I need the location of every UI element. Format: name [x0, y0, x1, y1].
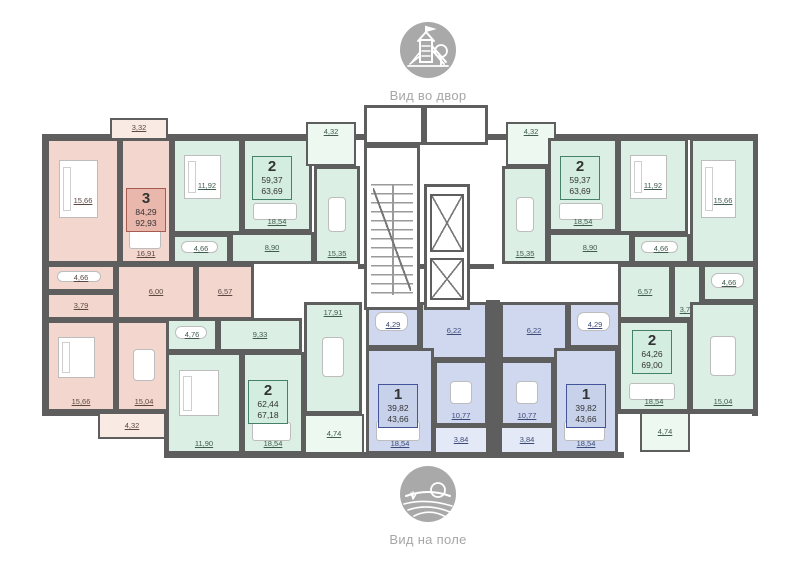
- balcony-apt-2-top-left-5: 4,32: [306, 122, 356, 166]
- bed-furniture: [58, 337, 95, 378]
- apartment-total-area: 92,93: [127, 218, 165, 229]
- balcony-apt-2-right-6: 4,74: [640, 412, 690, 452]
- room-area-label: 3,84: [502, 435, 552, 444]
- balcony-apt-2-bottom-left-5: 4,74: [304, 414, 364, 454]
- apartment-living-area: 84,29: [127, 207, 165, 218]
- room-apt-1-right-2: 10,77: [500, 360, 554, 426]
- apartment-living-area: 39,82: [379, 403, 417, 414]
- bed-furniture: [184, 155, 221, 198]
- apartment-living-area: 62,44: [249, 399, 287, 410]
- room-apt-3-left-8: 15,04: [116, 320, 172, 412]
- room-area-label: 6,00: [119, 287, 193, 296]
- balcony-apt-3-left-9: 4,32: [98, 412, 166, 439]
- room-area-label: 10,77: [503, 411, 551, 420]
- room-area-label: 4,32: [100, 421, 164, 430]
- apartment-rooms-count: 3: [127, 190, 165, 207]
- bed-furniture: [59, 160, 98, 218]
- room-apt-2-right-5: 15,04: [690, 302, 756, 412]
- apartment-info-apt-1-right[interactable]: 139,8243,66: [566, 384, 606, 428]
- room-apt-2-bottom-left-4: 17,91: [304, 302, 362, 414]
- room-apt-3-left-7: 15,66: [46, 320, 116, 412]
- view-field: Вид на поле: [0, 466, 800, 547]
- room-apt-2-bottom-left-2: 11,90: [166, 352, 242, 454]
- room-area-label: 4,74: [642, 427, 688, 436]
- apartment-total-area: 63,69: [253, 186, 291, 197]
- stairwell: [364, 145, 420, 310]
- apartment-rooms-count: 2: [253, 158, 291, 175]
- room-area-label: 8,90: [551, 243, 629, 252]
- room-area-label: 10,77: [437, 411, 485, 420]
- table-furniture: [450, 381, 471, 404]
- room-apt-1-right-1: 4,29: [568, 302, 622, 348]
- room-apt-2-top-right-5: 4,66: [632, 234, 690, 264]
- tub-furniture: [57, 271, 102, 282]
- room-area-label: 6,57: [199, 287, 251, 296]
- balcony-apt-1-right-4: 3,84: [500, 426, 554, 454]
- apartment-living-area: 59,37: [561, 175, 599, 186]
- entrance-vestibule-2: [424, 105, 488, 145]
- bed-furniture: [701, 160, 736, 218]
- sofa-furniture: [559, 203, 604, 221]
- apartment-rooms-count: 2: [633, 332, 671, 349]
- apartment-info-apt-2-top-left[interactable]: 259,3763,69: [252, 156, 292, 200]
- room-area-label: 6,22: [423, 326, 485, 335]
- room-apt-3-left-6: 6,57: [196, 264, 254, 320]
- room-apt-2-top-right-4: 11,92: [618, 138, 688, 234]
- floorplan-page: Вид во двор 3,3215,6616,914,663,796,006,…: [0, 0, 800, 566]
- room-area-label: 3,84: [436, 435, 486, 444]
- tub-furniture: [577, 312, 611, 331]
- apartment-info-apt-2-bottom-left[interactable]: 262,4467,18: [248, 380, 288, 424]
- room-apt-2-right-1: 4,66: [702, 264, 756, 302]
- apartment-total-area: 43,66: [379, 414, 417, 425]
- room-apt-2-right-0: 15,66: [690, 138, 756, 264]
- room-area-label: 4,32: [308, 127, 354, 136]
- apartment-living-area: 39,82: [567, 403, 605, 414]
- table-furniture: [710, 336, 736, 376]
- room-apt-3-left-4: 3,79: [46, 292, 116, 320]
- room-area-label: 4,32: [508, 127, 554, 136]
- stair-direction-line: [373, 188, 411, 291]
- room-area-label: 3,32: [112, 123, 166, 132]
- room-apt-3-left-3: 4,66: [46, 264, 116, 292]
- apartment-info-apt-2-top-right[interactable]: 259,3763,69: [560, 156, 600, 200]
- room-apt-2-top-right-3: 8,90: [548, 232, 632, 264]
- room-area-label: 15,35: [505, 249, 545, 258]
- apartment-total-area: 63,69: [561, 186, 599, 197]
- room-apt-3-left-1: 15,66: [46, 138, 120, 264]
- room-area-label: 17,91: [307, 308, 359, 317]
- tub-furniture: [641, 241, 677, 253]
- room-area-label: 11,90: [169, 439, 239, 448]
- table-furniture: [328, 197, 346, 232]
- tub-furniture: [711, 273, 745, 288]
- room-area-label: 15,04: [693, 397, 753, 406]
- room-area-label: 6,22: [503, 326, 565, 335]
- bed-furniture: [630, 155, 667, 198]
- apartment-info-apt-1-left[interactable]: 139,8243,66: [378, 384, 418, 428]
- apartment-living-area: 64,26: [633, 349, 671, 360]
- room-area-label: 15,04: [119, 397, 169, 406]
- room-apt-2-top-left-0: 11,92: [172, 138, 242, 234]
- elevator-1: [430, 194, 464, 252]
- entrance-vestibule-1: [364, 105, 424, 145]
- apartment-info-apt-3-left[interactable]: 384,2992,93: [126, 188, 166, 232]
- apartment-total-area: 69,00: [633, 360, 671, 371]
- room-area-label: 4,74: [306, 429, 362, 438]
- apartment-rooms-count: 1: [567, 386, 605, 403]
- apartment-rooms-count: 1: [379, 386, 417, 403]
- room-area-label: 8,90: [233, 243, 311, 252]
- table-furniture: [322, 337, 345, 377]
- room-apt-3-left-5: 6,00: [116, 264, 196, 320]
- table-furniture: [133, 349, 155, 382]
- apartment-rooms-count: 2: [561, 158, 599, 175]
- room-apt-2-top-right-1: 15,35: [502, 166, 548, 264]
- room-apt-2-right-3: 6,57: [618, 264, 672, 320]
- room-apt-2-bottom-left-0: 4,76: [166, 318, 218, 352]
- sofa-furniture: [252, 422, 291, 441]
- wall-segment: [486, 300, 500, 458]
- tub-furniture: [375, 312, 409, 331]
- room-apt-2-top-left-1: 4,66: [172, 234, 230, 264]
- apartment-total-area: 43,66: [567, 414, 605, 425]
- room-area-label: 15,66: [49, 397, 113, 406]
- table-furniture: [516, 381, 537, 404]
- room-area-label: 15,35: [317, 249, 357, 258]
- bed-furniture: [179, 370, 220, 416]
- balcony-apt-1-left-4: 3,84: [434, 426, 488, 454]
- room-apt-2-bottom-left-1: 9,33: [218, 318, 302, 352]
- room-area-label: 6,57: [621, 287, 669, 296]
- apartment-info-apt-2-right[interactable]: 264,2669,00: [632, 330, 672, 374]
- table-furniture: [516, 197, 534, 232]
- room-area-label: 9,33: [221, 330, 299, 339]
- apartment-living-area: 59,37: [253, 175, 291, 186]
- view-caption-bottom: Вид на поле: [56, 532, 800, 547]
- tub-furniture: [181, 241, 217, 253]
- elevator-2: [430, 258, 464, 300]
- field-icon: [400, 466, 456, 522]
- room-apt-1-left-3: 10,77: [434, 360, 488, 426]
- room-area-label: 3,79: [49, 301, 113, 310]
- apartment-total-area: 67,18: [249, 410, 287, 421]
- room-apt-2-top-left-4: 15,35: [314, 166, 360, 264]
- room-apt-2-top-left-3: 8,90: [230, 232, 314, 264]
- apartment-rooms-count: 2: [249, 382, 287, 399]
- room-area-label: 16,91: [123, 249, 169, 258]
- sofa-furniture: [253, 203, 298, 221]
- sofa-furniture: [629, 383, 675, 400]
- tub-furniture: [175, 326, 207, 339]
